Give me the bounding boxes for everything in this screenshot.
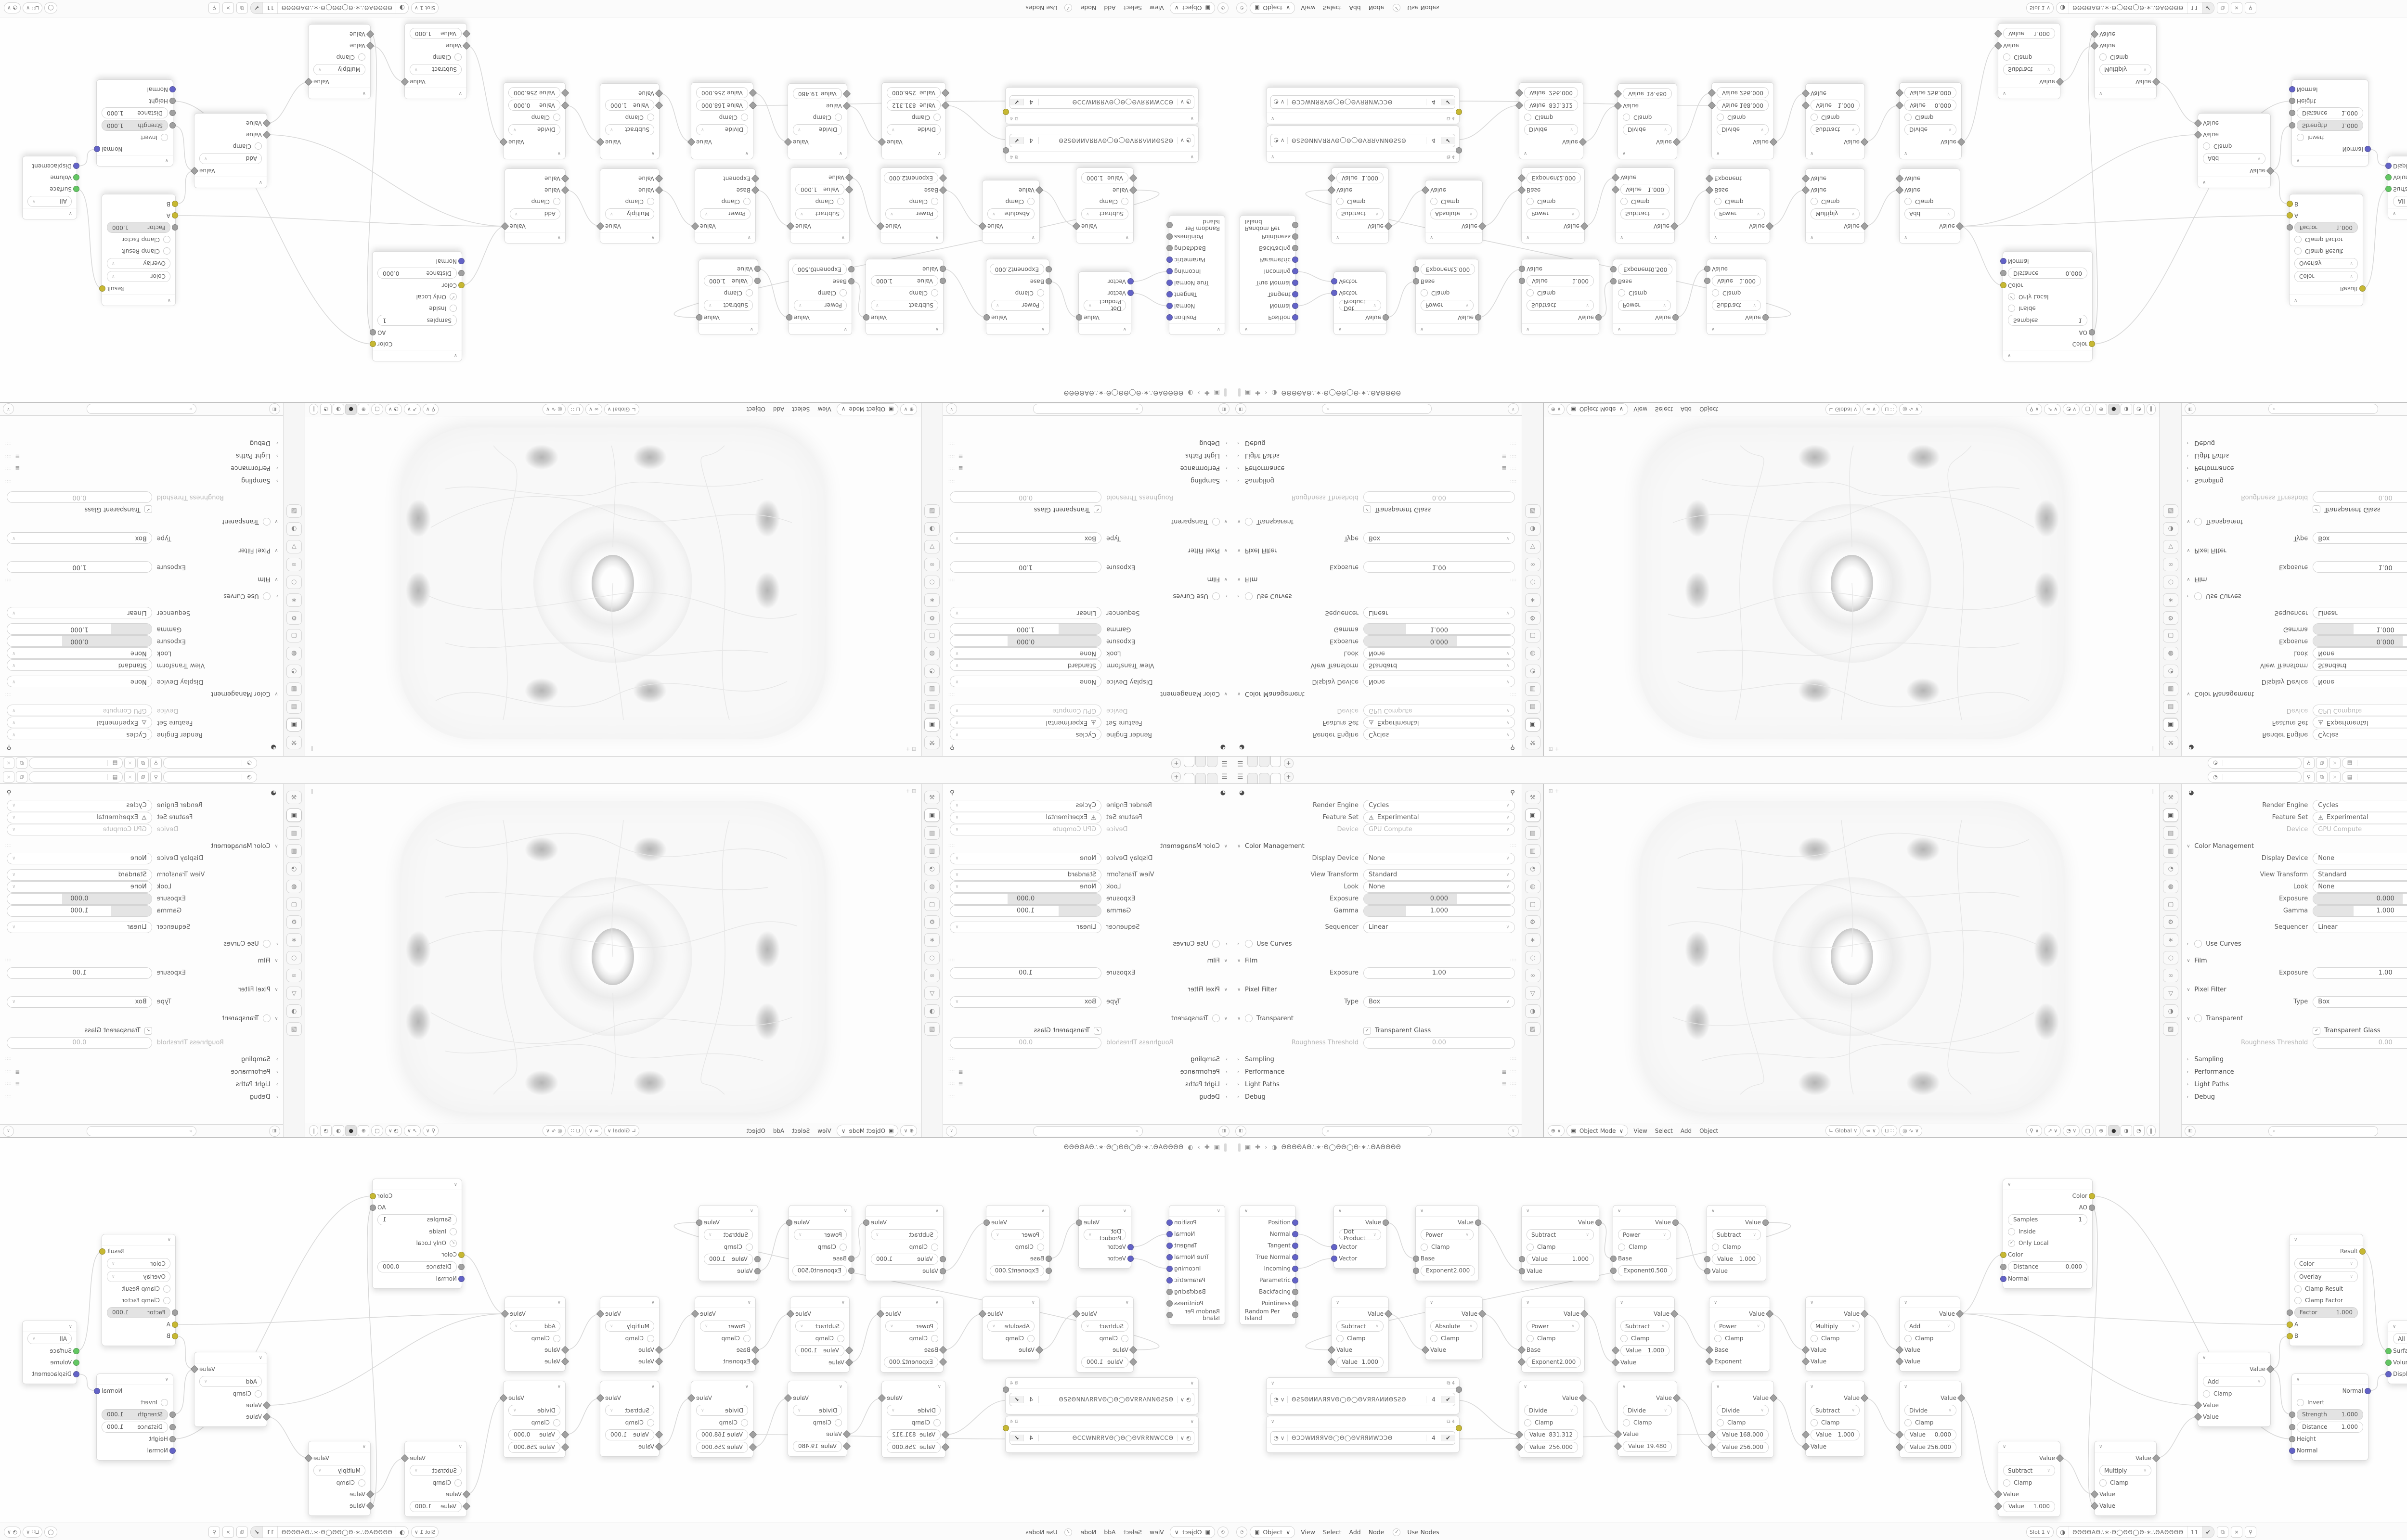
properties-tab-7[interactable]: ⚙ (286, 915, 302, 929)
node-checkbox[interactable] (1623, 114, 1630, 121)
node-checkbox[interactable] (553, 1419, 560, 1426)
collapse-chevron-icon[interactable]: ∨ (839, 1384, 842, 1389)
collapse-chevron-icon[interactable]: ∨ (1126, 235, 1129, 241)
output-socket[interactable] (1166, 257, 1173, 263)
properties-tab-13[interactable]: ▨ (2163, 504, 2178, 518)
property-field-view-transform[interactable]: Standard∨ (950, 660, 1101, 671)
node-checkbox[interactable] (1527, 198, 1534, 205)
node-header[interactable]: ∨⧉ 4 (1267, 151, 1459, 162)
collapse-chevron-icon[interactable]: ∨ (938, 1384, 941, 1389)
properties-tab-0[interactable]: ⚒ (1525, 736, 1540, 749)
shader-node-13[interactable]: ∨⧉ 4◔ ∨ΘƧSΘИИΛЯЯVΘ◯Θ◯ΘVЯЯΛИИΘSƧΘ4✔ (1266, 126, 1460, 163)
collapse-chevron-icon[interactable]: ∨ (1524, 1384, 1527, 1389)
viewport-3d[interactable]: ⊞ +‖⊕ ∨▣Object Mode∨ViewSelectAddObject∟… (1544, 403, 2161, 756)
node-value-field[interactable]: Value1.000 (2003, 28, 2055, 39)
node-header[interactable]: ∨ (699, 1206, 758, 1217)
section-checkbox[interactable] (2194, 592, 2202, 600)
node-header[interactable]: ∨ (1616, 1297, 1674, 1308)
node-value-field[interactable]: Value1.000 (1620, 1345, 1669, 1356)
input-socket[interactable] (73, 1348, 79, 1354)
material-users-count[interactable]: 11 (262, 1527, 277, 1538)
property-field-view-transform[interactable]: Standard∨ (2313, 869, 2407, 881)
property-field-sequencer[interactable]: Linear∨ (7, 607, 152, 619)
input-socket[interactable] (2289, 122, 2295, 128)
properties-tab-13[interactable]: ▨ (1525, 504, 1540, 518)
unlink-button[interactable]: × (2329, 757, 2341, 769)
node-value-field[interactable]: Value1.000 (1336, 1357, 1384, 1368)
menu-select[interactable]: Select (1652, 1128, 1676, 1134)
shader-node-5[interactable]: ∨ValueSubtract∨ClampValue1.000Value (1707, 1205, 1766, 1281)
node-dropdown[interactable]: Subtract∨ (605, 1405, 654, 1416)
collapse-chevron-icon[interactable]: ∨ (362, 91, 366, 96)
node-header[interactable]: ∨ (1425, 232, 1482, 243)
menu-select[interactable]: Select (789, 1128, 813, 1134)
collapse-chevron-icon[interactable]: ∨ (1526, 327, 1529, 332)
material-users-count[interactable]: 11 (262, 2, 277, 13)
shading-mode-3[interactable]: ◔ (2133, 404, 2145, 415)
fake-user-shield-icon[interactable]: ✔ (1441, 99, 1455, 105)
unlink-button[interactable]: × (2231, 1527, 2242, 1538)
node-value-field[interactable]: Value1.000 (1811, 1429, 1860, 1440)
property-field-sequencer[interactable]: Linear∨ (950, 607, 1101, 619)
node-value-field[interactable]: Value1.000 (1620, 184, 1669, 195)
shader-node-1[interactable]: ∨ValueDot Product∨VectorVector (1078, 271, 1131, 335)
node-dropdown[interactable]: Subtract∨ (1620, 208, 1669, 219)
input-socket[interactable] (2289, 1436, 2295, 1442)
node-header[interactable]: ∨⧉ 4 (1006, 1416, 1198, 1427)
workspace-tab[interactable] (1247, 757, 1258, 767)
input-socket[interactable] (1046, 266, 1052, 272)
menu-icon[interactable]: ☰ (1237, 759, 1243, 767)
node-header[interactable]: ∨ (102, 295, 175, 306)
pause-icon[interactable]: ‖ (2147, 1125, 2156, 1136)
workspace-tab[interactable] (1259, 757, 1269, 767)
viewport-toggle-icon-2[interactable]: ◔ ∨ (385, 1125, 402, 1136)
input-socket[interactable] (1704, 266, 1710, 272)
node-checkbox[interactable] (163, 1297, 170, 1304)
output-socket[interactable] (1456, 1386, 1462, 1393)
menu-icon[interactable]: ☰ (1221, 759, 1228, 767)
input-socket[interactable] (1127, 1256, 1134, 1262)
viewport-3d[interactable]: ⊞ +‖⊕ ∨▣Object Mode∨ViewSelectAddObject∟… (305, 784, 921, 1137)
node-checkbox[interactable] (647, 1335, 654, 1342)
viewport-toggle-icon-3[interactable]: ▢ (2082, 404, 2093, 415)
output-socket[interactable] (1595, 314, 1602, 321)
output-socket[interactable] (1166, 1289, 1173, 1295)
property-field-roughness-threshold[interactable]: 0.00 (950, 492, 1101, 503)
properties-tab-13[interactable]: ▨ (286, 504, 302, 518)
collapse-chevron-icon[interactable]: ∨ (1810, 1300, 1813, 1305)
node-checkbox[interactable] (2294, 1285, 2302, 1293)
node-checkbox[interactable] (358, 54, 365, 61)
input-socket[interactable] (1046, 1268, 1052, 1274)
section-performance[interactable]: ›Performance≣∷∷ (2182, 1065, 2407, 1078)
node-value-field[interactable]: Value168.000 (696, 100, 748, 111)
section-checkbox[interactable] (263, 1014, 271, 1022)
input-socket[interactable] (848, 278, 854, 284)
material-browse-icon[interactable]: ◑ (2057, 1527, 2069, 1538)
node-checkbox[interactable] (1717, 114, 1724, 121)
node-checkbox[interactable] (1712, 290, 1719, 297)
input-socket[interactable] (2385, 163, 2392, 169)
input-socket[interactable] (2287, 224, 2293, 231)
input-socket[interactable] (73, 1360, 79, 1366)
collapse-chevron-icon[interactable]: ∨ (2294, 298, 2297, 303)
property-field-sequencer[interactable]: Linear∨ (7, 922, 152, 933)
input-socket[interactable] (458, 1276, 465, 1282)
node-checkbox[interactable] (1620, 1335, 1628, 1342)
section-checkbox[interactable] (1212, 518, 1220, 526)
node-checkbox[interactable] (837, 198, 844, 205)
property-field-display-device[interactable]: None∨ (1363, 853, 1515, 864)
output-socket[interactable] (1166, 233, 1173, 240)
viewport-toggle-icon-0[interactable]: ⚲ ∨ (423, 1125, 439, 1136)
properties-tab-8[interactable]: ∗ (2163, 593, 2178, 607)
orientation-dropdown[interactable]: ∟ Global ∨ (1825, 404, 1861, 415)
node-checkbox[interactable] (2294, 236, 2302, 244)
viewlayer-browse-icon[interactable]: ▤ (2342, 760, 2357, 766)
unlink-button[interactable]: × (222, 1527, 234, 1538)
collapse-chevron-icon[interactable]: ∨ (1271, 1419, 1274, 1424)
collapse-chevron-icon[interactable]: ∨ (2296, 1377, 2300, 1382)
property-field-view-transform[interactable]: Standard∨ (7, 660, 152, 671)
snapping-target-icon[interactable]: ∞ ∨ (585, 1125, 602, 1136)
node-value-field[interactable]: Factor1.000 (107, 222, 170, 233)
properties-tab-2[interactable]: ▤ (924, 700, 940, 714)
shader-node-18[interactable]: ∨ValueSubtract∨ClampValue1.000Value (600, 1381, 660, 1457)
node-header[interactable]: ∨ (1806, 148, 1864, 159)
node-header[interactable]: ∨ (1334, 1206, 1386, 1217)
search-input[interactable]: ⌕ (2268, 1126, 2378, 1136)
node-value-field[interactable]: Distance0.000 (377, 1261, 457, 1272)
shader-node-9[interactable]: ∨ValueSubtract∨ClampValue1.000Value (1615, 1296, 1675, 1373)
output-socket[interactable] (1292, 303, 1298, 309)
section-film[interactable]: ∨Film∷∷ (1232, 573, 1522, 586)
pin-icon[interactable]: ⚲ (150, 757, 162, 769)
shader-node-14[interactable]: ∨⧉ 4◔ ∨ΘƆƆWИЯЯVΘ◯Θ◯ΘVЯЯИWƆƆΘ4✔ (1005, 87, 1199, 124)
right-icon-2[interactable]: ◔ ∨ (4, 1527, 21, 1538)
scene-browse-icon[interactable]: ◔ (2208, 774, 2223, 780)
node-dropdown[interactable]: Overlay∨ (107, 258, 170, 269)
input-socket[interactable] (940, 1268, 946, 1274)
section-transparent[interactable]: ∨Transparent (943, 515, 1232, 528)
output-socket[interactable] (1762, 314, 1769, 321)
section-color-management[interactable]: ∨Color Management∷∷ (0, 688, 283, 700)
node-checkbox[interactable] (2008, 1228, 2015, 1235)
copy-icon[interactable]: ⧉ (16, 771, 27, 783)
input-socket[interactable] (1413, 266, 1419, 272)
node-header[interactable]: ∨ (1712, 1381, 1773, 1392)
section-performance[interactable]: ›Performance≣∷∷ (2182, 462, 2407, 475)
collapse-chevron-icon[interactable]: ∨ (2007, 353, 2011, 359)
shader-node-1[interactable]: ∨ValueDot Product∨VectorVector (1333, 1205, 1386, 1269)
properties-tab-13[interactable]: ▨ (286, 1022, 302, 1036)
node-header[interactable]: ∨ (102, 1234, 175, 1245)
collapse-chevron-icon[interactable]: ∨ (1526, 1208, 1529, 1214)
image-browse-icon[interactable]: ◔ ∨ (1271, 99, 1288, 105)
property-field-exposure[interactable]: 1.00 (7, 562, 152, 573)
node-checkbox[interactable] (161, 134, 168, 141)
node-value-field[interactable]: Value256.000 (1904, 1442, 1956, 1453)
property-field-look[interactable]: None∨ (950, 648, 1101, 659)
node-dropdown[interactable]: All∨ (2393, 1333, 2407, 1344)
node-dropdown[interactable]: Divide∨ (793, 1405, 842, 1416)
properties-tab-12[interactable]: ◑ (924, 522, 940, 536)
node-checkbox[interactable] (2297, 1399, 2304, 1406)
node-header[interactable]: ∨ (23, 208, 77, 219)
fake-user-shield-icon[interactable]: ✔ (1441, 1396, 1455, 1403)
collapse-chevron-icon[interactable]: ∨ (1526, 235, 1529, 241)
menu-view[interactable]: View (1297, 1528, 1319, 1536)
shader-node-16[interactable]: ∨ValueDivide∨ClampValueValue19.480 (788, 1381, 847, 1457)
input-socket[interactable] (2385, 1348, 2392, 1354)
node-value-field[interactable]: Exponent2.000 (1421, 264, 1475, 275)
collapse-chevron-icon[interactable]: ∨ (1126, 1300, 1129, 1305)
node-dropdown[interactable]: Divide∨ (1904, 124, 1956, 135)
shading-mode-2[interactable]: ◑ (333, 1125, 344, 1136)
collapse-icon[interactable]: ∨ (946, 404, 957, 415)
input-socket[interactable] (1046, 1256, 1052, 1262)
properties-tab-6[interactable]: ▢ (924, 629, 940, 642)
node-value-field[interactable]: Value256.000 (1904, 88, 1956, 99)
property-field-look[interactable]: None∨ (7, 881, 152, 893)
collapse-chevron-icon[interactable]: ∨ (1191, 116, 1194, 121)
shader-node-13[interactable]: ∨⧉ 4◔ ∨ΘƧSΘИИΛЯЯVΘ◯Θ◯ΘVЯЯΛИИΘSƧΘ4✔ (1005, 1377, 1199, 1414)
viewlayer-selector[interactable]: ▤ (29, 771, 123, 783)
menu-object[interactable]: Object (1696, 406, 1721, 413)
section-checkbox[interactable] (1245, 940, 1253, 948)
node-dropdown[interactable]: Add∨ (2203, 1376, 2265, 1387)
shader-node-15[interactable]: ∨ValueDivide∨ClampValue831.312Value256.0… (881, 82, 946, 159)
image-name-field[interactable]: ΘƆƆWИЯЯVΘ◯Θ◯ΘVЯЯИWƆƆΘ (1039, 1435, 1177, 1441)
shader-node-13[interactable]: ∨⧉ 4◔ ∨ΘƧSΘИИΛЯЯVΘ◯Θ◯ΘVЯЯΛИИΘSƧΘ4✔ (1266, 1377, 1460, 1414)
node-value-field[interactable]: Value1.000 (1527, 1254, 1594, 1265)
menu-view[interactable]: View (814, 406, 834, 413)
output-socket[interactable] (1475, 1219, 1481, 1226)
input-socket[interactable] (458, 270, 465, 276)
properties-tab-5[interactable]: ◍ (2163, 880, 2178, 893)
node-value-field[interactable]: Value1.000 (1336, 173, 1384, 184)
input-socket[interactable] (1413, 278, 1419, 284)
menu-select[interactable]: Select (1320, 1528, 1345, 1536)
output-socket[interactable] (94, 146, 100, 152)
section-checkbox[interactable] (1245, 1014, 1253, 1022)
editor-type-icon[interactable]: ◔ (1236, 2, 1247, 13)
node-checkbox[interactable] (931, 1335, 938, 1342)
material-browse-icon[interactable]: ◑ (396, 2, 408, 13)
output-socket[interactable] (2089, 1205, 2095, 1211)
node-checkbox[interactable] (931, 1244, 938, 1251)
property-field-display-device[interactable]: None∨ (2313, 676, 2407, 688)
node-value-field[interactable]: Value1.000 (871, 1254, 938, 1265)
output-socket[interactable] (1166, 1231, 1173, 1237)
shader-node-25[interactable]: ∨NormalInvertStrength1.000Distance1.000H… (96, 1373, 173, 1461)
section-checkbox[interactable] (263, 940, 271, 948)
properties-tab-11[interactable]: ▽ (924, 540, 940, 553)
node-dropdown[interactable]: Absolute∨ (1430, 1321, 1477, 1332)
viewport-gizmo-overlay-icon[interactable]: ‖ (311, 746, 314, 752)
viewport-toggle-icon-3[interactable]: ▢ (371, 1125, 383, 1136)
output-socket[interactable] (1003, 1425, 1009, 1431)
pause-icon[interactable]: ‖ (2147, 404, 2156, 415)
collapse-chevron-icon[interactable]: ∨ (165, 1377, 168, 1382)
menu-select[interactable]: Select (1120, 4, 1145, 12)
copy-icon[interactable]: ⧉ (16, 757, 27, 769)
node-dropdown[interactable]: Color∨ (2294, 271, 2358, 282)
copy-icon[interactable]: ⧉ (236, 1527, 248, 1538)
property-field-feature-set[interactable]: ⚠Experimental∨ (950, 812, 1101, 823)
node-header[interactable]: ∨ (1240, 1206, 1295, 1217)
node-dropdown[interactable]: Multiply∨ (313, 64, 365, 75)
node-header[interactable]: ∨ (2292, 155, 2368, 166)
menu-node[interactable]: Node (1365, 1528, 1388, 1536)
section-light-paths[interactable]: ›Light Paths≣∷∷ (2182, 1078, 2407, 1091)
proportional-editing-icon[interactable]: ◎ ∿ ∨ (1899, 404, 1922, 415)
node-value-field[interactable]: Value0.000 (1904, 1429, 1956, 1440)
properties-tab-3[interactable]: ▥ (924, 844, 940, 858)
node-checkbox[interactable]: ✓ (450, 294, 457, 301)
output-socket[interactable] (2089, 329, 2095, 335)
property-field-render-engine[interactable]: Cycles∨ (2313, 729, 2407, 741)
input-socket[interactable] (848, 1256, 854, 1262)
snapping-target-icon[interactable]: ∞ ∨ (585, 404, 602, 415)
property-field-view-transform[interactable]: Standard∨ (2313, 660, 2407, 671)
node-value-field[interactable]: Distance0.000 (2008, 268, 2087, 279)
properties-tab-11[interactable]: ▽ (1525, 540, 1540, 553)
node-checkbox[interactable] (163, 1285, 170, 1293)
viewport-tool-overlay-icon[interactable]: ⊞ + (906, 746, 916, 752)
output-socket[interactable] (94, 1388, 100, 1394)
input-socket[interactable] (458, 258, 465, 264)
output-socket[interactable] (2089, 341, 2095, 347)
section-pixel-filter[interactable]: ∨Pixel Filter (943, 544, 1232, 557)
shader-node-13[interactable]: ∨⧉ 4◔ ∨ΘƧSΘИИΛЯЯVΘ◯Θ◯ΘVЯЯΛИИΘSƧΘ4✔ (1005, 126, 1199, 163)
shader-node-26[interactable]: ∨All∨SurfaceVolumeDisplacement (22, 156, 77, 219)
menu-add[interactable]: Add (1100, 4, 1119, 12)
node-header[interactable]: ∨ (405, 1441, 466, 1452)
node-value-field[interactable]: Value256.000 (887, 88, 941, 99)
node-value-field[interactable]: Exponent0.500 (1618, 1265, 1672, 1276)
node-header[interactable]: ∨ (2198, 1352, 2270, 1363)
node-value-field[interactable]: Value19.480 (793, 89, 842, 100)
viewlayer-browse-icon[interactable]: ▤ (107, 760, 122, 766)
node-header[interactable]: ∨ (1519, 1381, 1583, 1392)
properties-tab-3[interactable]: ▥ (286, 682, 302, 696)
input-socket[interactable] (1610, 266, 1617, 272)
material-name-field[interactable]: ΘΘΘΘAΘ∴∗·Θ◯ΘΘ◯Θ·∗∴ΘAΘΘΘΘ (277, 2, 396, 13)
collapse-chevron-icon[interactable]: ∨ (1618, 327, 1621, 332)
properties-tab-9[interactable]: ◌ (2163, 951, 2178, 964)
menu-add[interactable]: Add (1100, 1528, 1119, 1536)
node-dropdown[interactable]: All∨ (27, 1333, 72, 1344)
use-nodes-checkbox[interactable]: ✓ (1064, 4, 1072, 12)
properties-tab-7[interactable]: ⚙ (924, 611, 940, 625)
input-socket[interactable] (2000, 270, 2006, 276)
shader-node-21[interactable]: ∨ValueMultiply∨ClampValueValue (308, 1441, 371, 1516)
shader-node-22[interactable]: ∨ColorAOSamples1Inside✓Only LocalColorDi… (372, 1179, 462, 1289)
property-field-sequencer[interactable]: Linear∨ (1363, 922, 1515, 933)
node-dropdown[interactable]: Add∨ (1904, 208, 1955, 219)
node-dropdown[interactable]: Subtract∨ (1712, 1229, 1761, 1240)
shader-node-3[interactable]: ∨ValueSubtract∨ClampValue1.000Value (866, 1205, 944, 1281)
collapse-chevron-icon[interactable]: ∨ (651, 235, 655, 241)
node-checkbox[interactable] (1027, 1335, 1035, 1342)
node-header[interactable]: ∨ (1707, 323, 1766, 334)
shader-node-15[interactable]: ∨ValueDivide∨ClampValue831.312Value256.0… (1519, 82, 1583, 159)
collapse-chevron-icon[interactable]: ∨ (2393, 211, 2396, 217)
section-pixel-filter[interactable]: ∨Pixel Filter (2182, 983, 2407, 996)
property-field-feature-set[interactable]: ⚠Experimental∨ (1363, 717, 1515, 729)
image-browse-icon[interactable]: ◔ ∨ (1271, 137, 1288, 144)
pin-icon[interactable]: ⚲ (7, 744, 12, 751)
fake-user-shield-icon[interactable]: ✔ (1441, 1435, 1455, 1441)
input-socket[interactable] (169, 98, 176, 104)
shader-node-7[interactable]: ∨ValueAbsolute∨ClampValue (1425, 1296, 1483, 1360)
collapse-chevron-icon[interactable]: ∨ (2003, 91, 2006, 96)
collapse-chevron-icon[interactable]: ∨ (1336, 235, 1339, 241)
node-checkbox[interactable] (1336, 1335, 1344, 1342)
node-checkbox[interactable] (746, 1244, 753, 1251)
node-dropdown[interactable]: Power∨ (1421, 1229, 1474, 1240)
use-nodes-toggle[interactable]: ✓Use Nodes (1025, 4, 1072, 12)
property-field-gamma[interactable]: 1.000 (2313, 624, 2407, 635)
mode-dropdown[interactable]: ▣Object Mode∨ (837, 403, 899, 415)
node-header[interactable]: ∨ (1998, 1441, 2060, 1452)
node-value-field[interactable]: Value168.000 (1717, 100, 1769, 111)
properties-tab-10[interactable]: ∞ (286, 558, 302, 571)
section-color-management[interactable]: ∨Color Management∷∷ (0, 840, 283, 852)
workspace-tab[interactable] (1184, 757, 1194, 767)
node-checkbox[interactable] (163, 236, 170, 244)
node-checkbox[interactable] (931, 290, 938, 297)
collapse-chevron-icon[interactable]: ∨ (1041, 1208, 1045, 1214)
property-field-gamma[interactable]: 1.000 (950, 905, 1101, 917)
shader-node-23[interactable]: ∨ResultColor∨Overlay∨Clamp ResultClamp F… (102, 1234, 176, 1346)
shader-node-2[interactable]: ∨ValuePower∨ClampBaseExponent2.000 (986, 1205, 1049, 1281)
node-checkbox[interactable] (2203, 1390, 2210, 1398)
property-field-gamma[interactable]: 1.000 (1363, 624, 1515, 635)
properties-tab-6[interactable]: ▢ (2163, 629, 2178, 642)
node-header[interactable]: ∨ (789, 1206, 852, 1217)
properties-tab-5[interactable]: ◍ (1525, 880, 1540, 893)
node-value-field[interactable]: Samples1 (2008, 1214, 2087, 1225)
node-dropdown[interactable]: Power∨ (1421, 300, 1474, 311)
node-dropdown[interactable]: Subtract∨ (1811, 1405, 1860, 1416)
output-socket[interactable] (1292, 268, 1298, 274)
node-dropdown[interactable]: Divide∨ (696, 124, 748, 135)
node-value-field[interactable]: Value19.480 (1623, 89, 1672, 100)
properties-tab-0[interactable]: ⚒ (1525, 791, 1540, 804)
orientation-dropdown[interactable]: ∟ Global ∨ (604, 404, 639, 415)
node-value-field[interactable]: Exponent2.000 (1527, 1357, 1581, 1368)
node-value-field[interactable]: Factor1.000 (2294, 1307, 2358, 1318)
input-socket[interactable] (2289, 1424, 2295, 1430)
node-value-field[interactable]: Value256.000 (1717, 88, 1769, 99)
collapse-chevron-icon[interactable]: ∨ (362, 1444, 366, 1450)
workspace-tab[interactable] (1207, 773, 1217, 783)
menu-node[interactable]: Node (1365, 4, 1388, 12)
menu-icon[interactable]: ☰ (1221, 773, 1228, 781)
shader-node-11[interactable]: ∨ValueMultiply∨ClampValueValue (1805, 168, 1865, 244)
properties-tab-3[interactable]: ▥ (1525, 844, 1540, 858)
property-field-sequencer[interactable]: Linear∨ (950, 922, 1101, 933)
node-header[interactable]: ∨ (1712, 148, 1773, 159)
search-input[interactable]: ⌕ (1322, 1126, 1432, 1136)
section-debug[interactable]: ›Debug∷∷ (943, 1091, 1232, 1103)
node-header[interactable]: ∨ (600, 1297, 659, 1308)
editor-type-button[interactable]: ⊕ ∨ (1548, 404, 1565, 415)
collapse-chevron-icon[interactable]: ∨ (168, 1237, 171, 1243)
